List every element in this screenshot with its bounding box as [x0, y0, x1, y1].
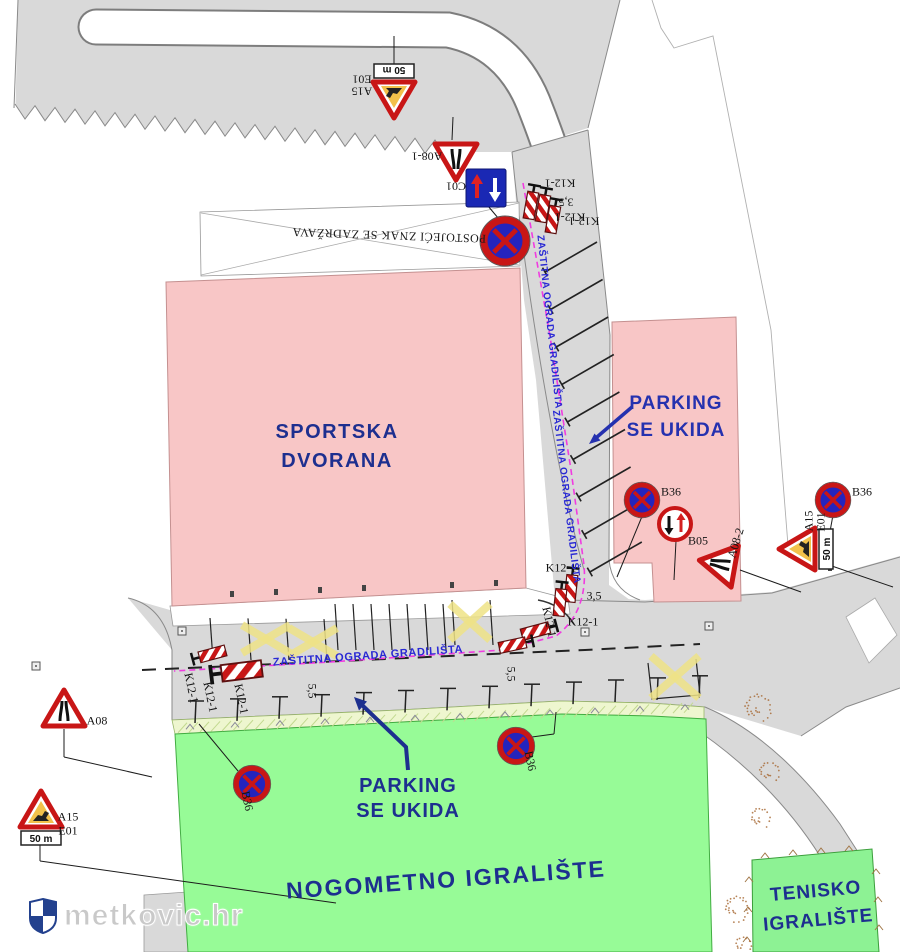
- sportska-line2: DVORANA: [281, 450, 393, 472]
- label-sportska-dvorana: SPORTSKA DVORANA: [275, 418, 398, 476]
- label-parking-se-ukida-right: PARKING SE UKIDA: [627, 390, 726, 444]
- parking-bottom-line1: PARKING: [359, 775, 457, 797]
- building-parking-right: [612, 317, 741, 602]
- watermark-text: metkovic.hr: [64, 899, 243, 933]
- traffic-plan-canvas: 50 m50 m50 m E01A15A08-1C01K12-13,5K12-1…: [0, 0, 900, 952]
- parking-bottom-line2: SE UKIDA: [356, 800, 460, 822]
- parking-right-line1: PARKING: [629, 393, 722, 414]
- tenisko-line2: IGRALIŠTE: [762, 905, 874, 936]
- tenisko-line1: TENISKO: [769, 877, 862, 906]
- label-tenisko-igraliste: TENISKO IGRALIŠTE: [760, 872, 875, 939]
- label-parking-se-ukida-bottom: PARKING SE UKIDA: [356, 774, 460, 824]
- watermark: metkovic.hr: [28, 898, 243, 934]
- field-nogometno: [175, 714, 712, 952]
- parking-right-line2: SE UKIDA: [627, 420, 726, 441]
- metkovic-shield-icon: [28, 898, 58, 934]
- sportska-line1: SPORTSKA: [275, 421, 398, 443]
